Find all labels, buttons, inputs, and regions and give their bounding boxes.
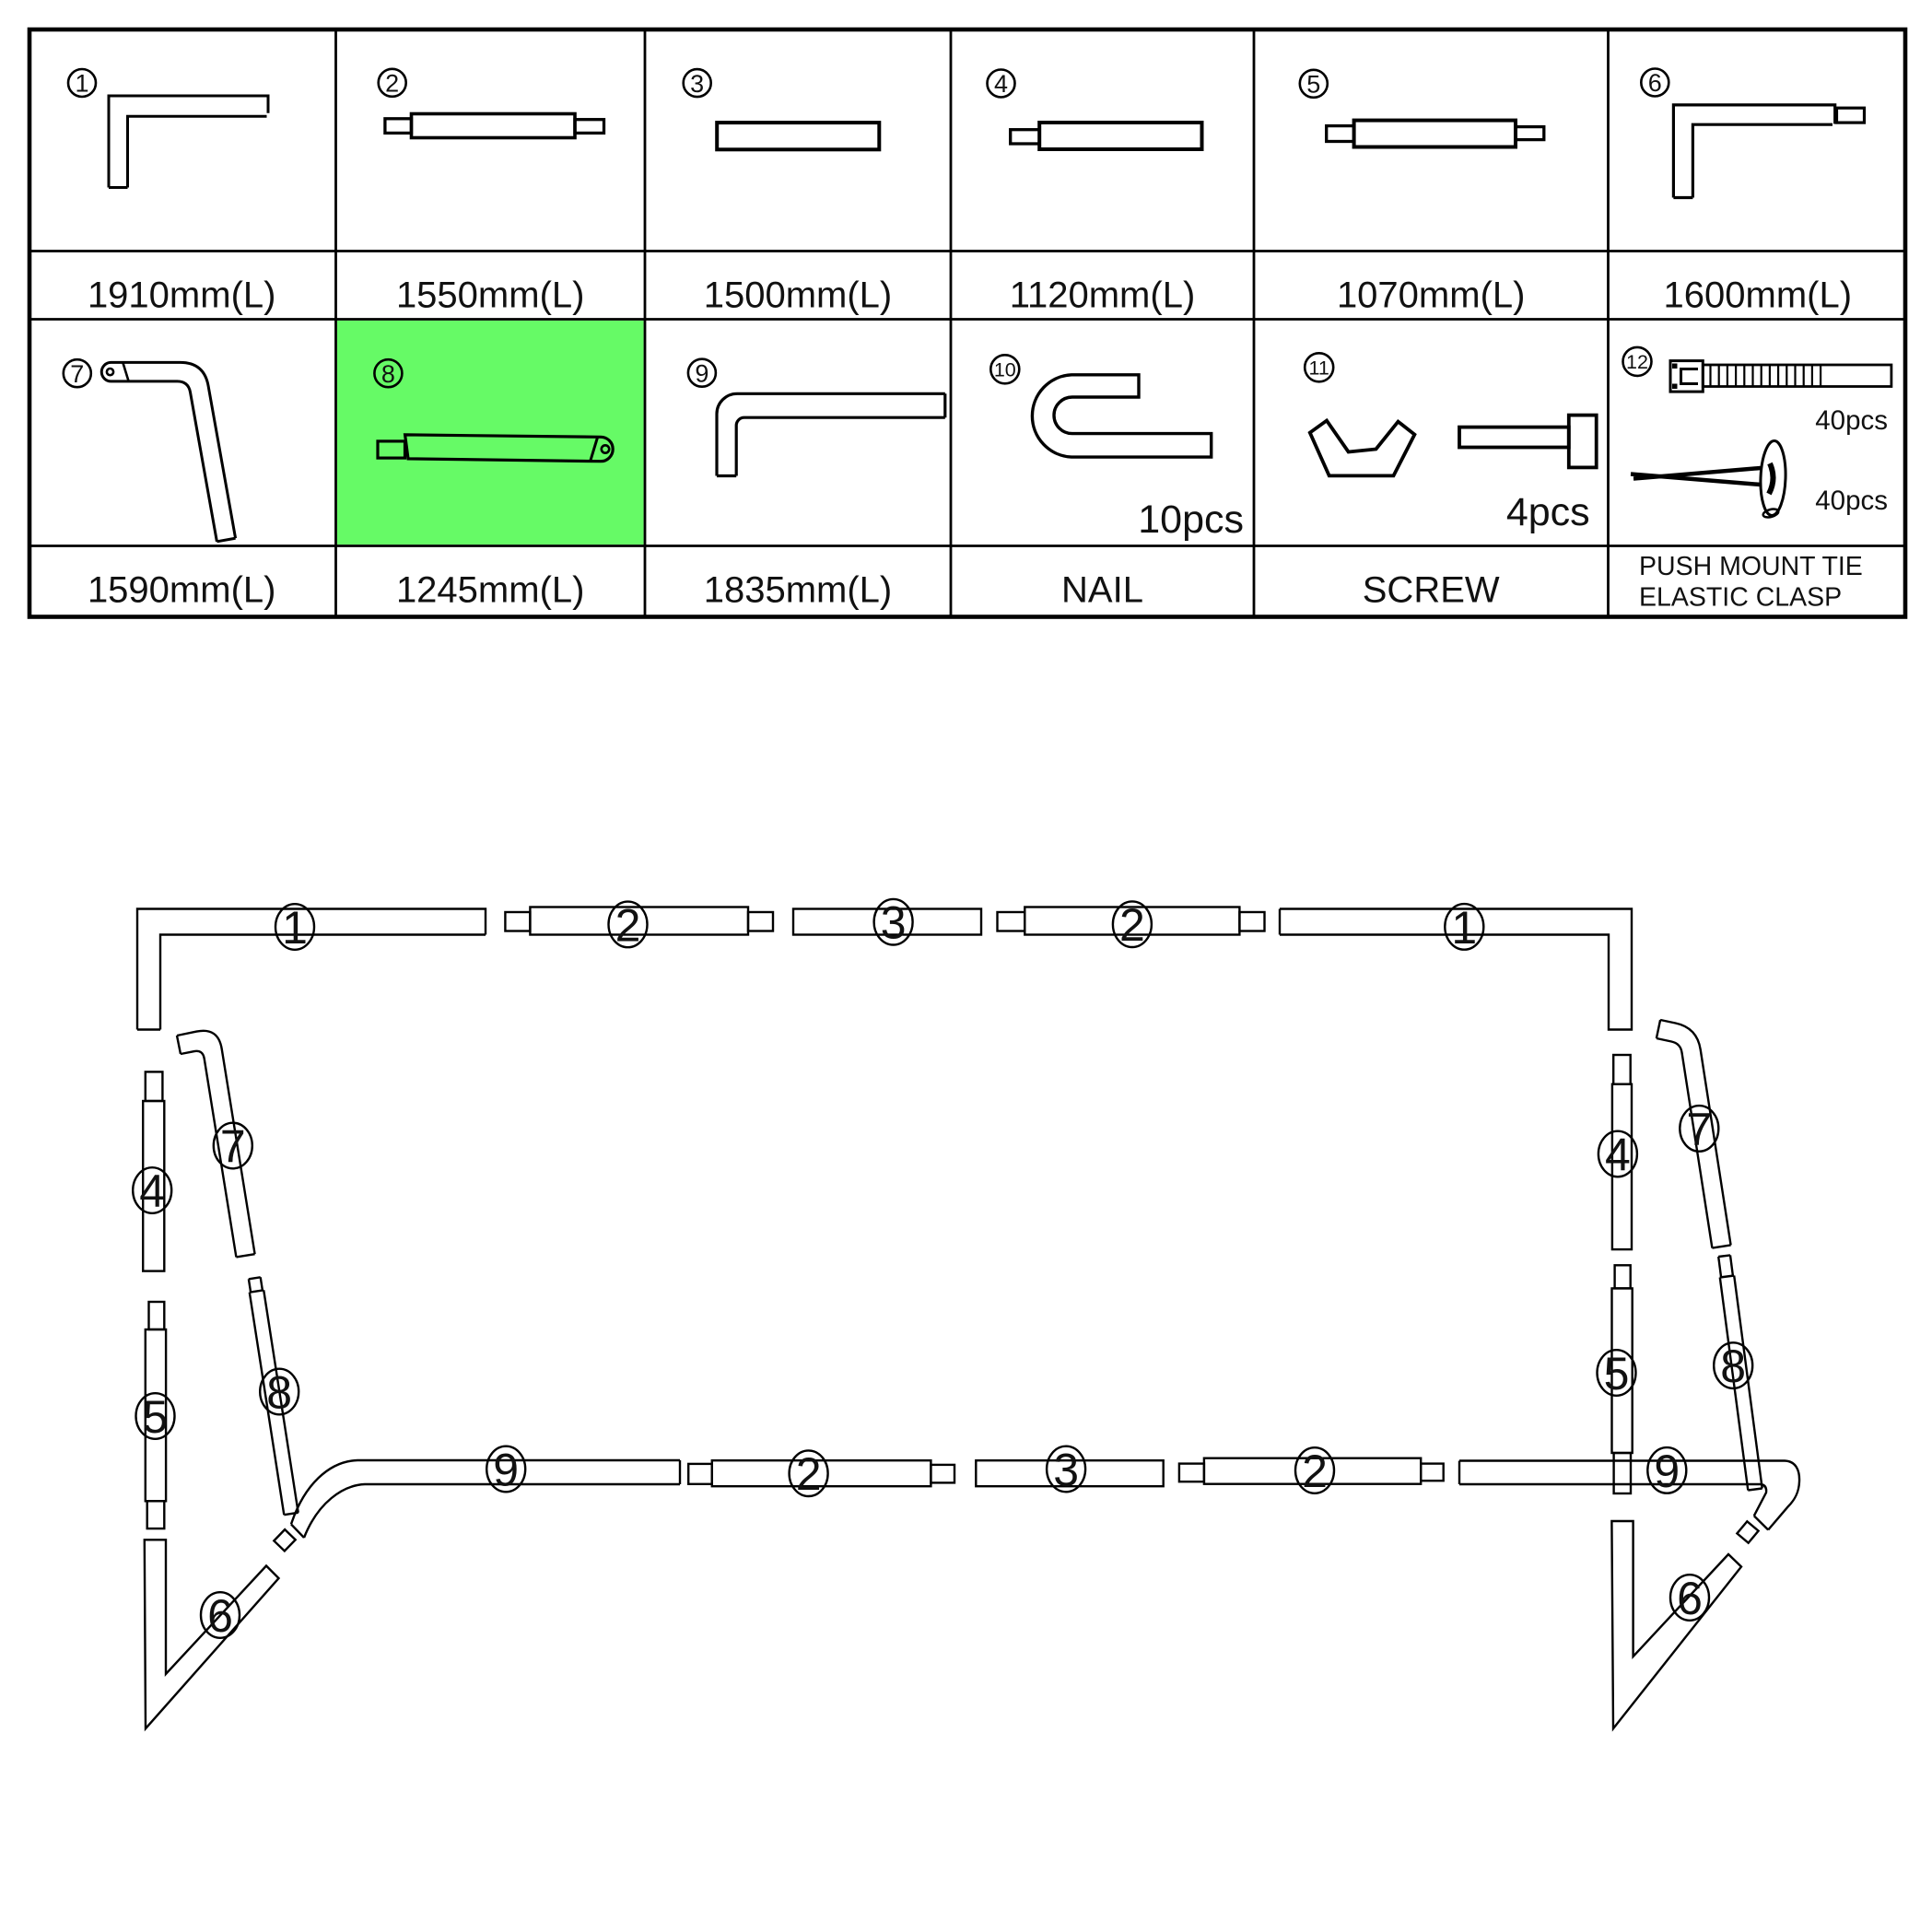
svg-text:7: 7 [1686,1104,1712,1155]
svg-text:NAIL: NAIL [1061,570,1143,611]
svg-text:40pcs: 40pcs [1815,486,1888,516]
svg-text:PUSH MOUNT TIE: PUSH MOUNT TIE [1639,552,1863,581]
svg-text:5: 5 [1604,1348,1630,1399]
svg-text:5: 5 [1306,71,1320,99]
svg-text:1910mm(L): 1910mm(L) [88,275,276,316]
svg-text:7: 7 [70,360,84,388]
svg-text:1: 1 [282,902,308,954]
svg-text:4: 4 [1605,1129,1631,1180]
svg-text:7: 7 [220,1120,246,1172]
svg-text:10: 10 [994,359,1016,381]
svg-text:8: 8 [1720,1341,1746,1392]
svg-text:3: 3 [881,897,907,949]
svg-text:1500mm(L): 1500mm(L) [704,275,893,316]
svg-text:1120mm(L): 1120mm(L) [1010,275,1196,316]
svg-text:6: 6 [207,1590,233,1642]
svg-text:SCREW: SCREW [1363,570,1500,611]
svg-text:1245mm(L): 1245mm(L) [396,570,585,611]
svg-text:40pcs: 40pcs [1815,405,1888,436]
svg-text:4: 4 [994,70,1008,98]
svg-text:1: 1 [1451,902,1477,954]
svg-text:2: 2 [385,70,399,98]
svg-text:6: 6 [1648,69,1662,97]
svg-text:4pcs: 4pcs [1506,490,1590,534]
svg-text:9: 9 [1654,1446,1680,1497]
svg-text:4: 4 [139,1165,165,1217]
svg-text:1600mm(L): 1600mm(L) [1664,275,1853,316]
svg-text:1590mm(L): 1590mm(L) [88,570,276,611]
svg-text:5: 5 [143,1391,169,1443]
svg-text:6: 6 [1677,1573,1703,1624]
svg-text:2: 2 [1302,1446,1328,1497]
svg-text:2: 2 [796,1448,822,1500]
svg-text:8: 8 [381,360,395,388]
svg-text:9: 9 [695,359,708,387]
svg-text:10pcs: 10pcs [1138,498,1244,542]
svg-text:1550mm(L): 1550mm(L) [396,275,585,316]
svg-text:8: 8 [266,1366,292,1418]
svg-text:3: 3 [1053,1444,1079,1495]
svg-text:2: 2 [1119,899,1145,951]
svg-text:11: 11 [1309,357,1329,380]
svg-text:1070mm(L): 1070mm(L) [1337,275,1526,316]
svg-text:12: 12 [1626,351,1648,373]
svg-text:9: 9 [493,1444,519,1495]
svg-text:ELASTIC CLASP: ELASTIC CLASP [1639,583,1842,613]
svg-text:1835mm(L): 1835mm(L) [704,570,893,611]
svg-text:3: 3 [690,70,704,98]
svg-text:1: 1 [75,70,88,98]
svg-text:2: 2 [615,899,641,951]
